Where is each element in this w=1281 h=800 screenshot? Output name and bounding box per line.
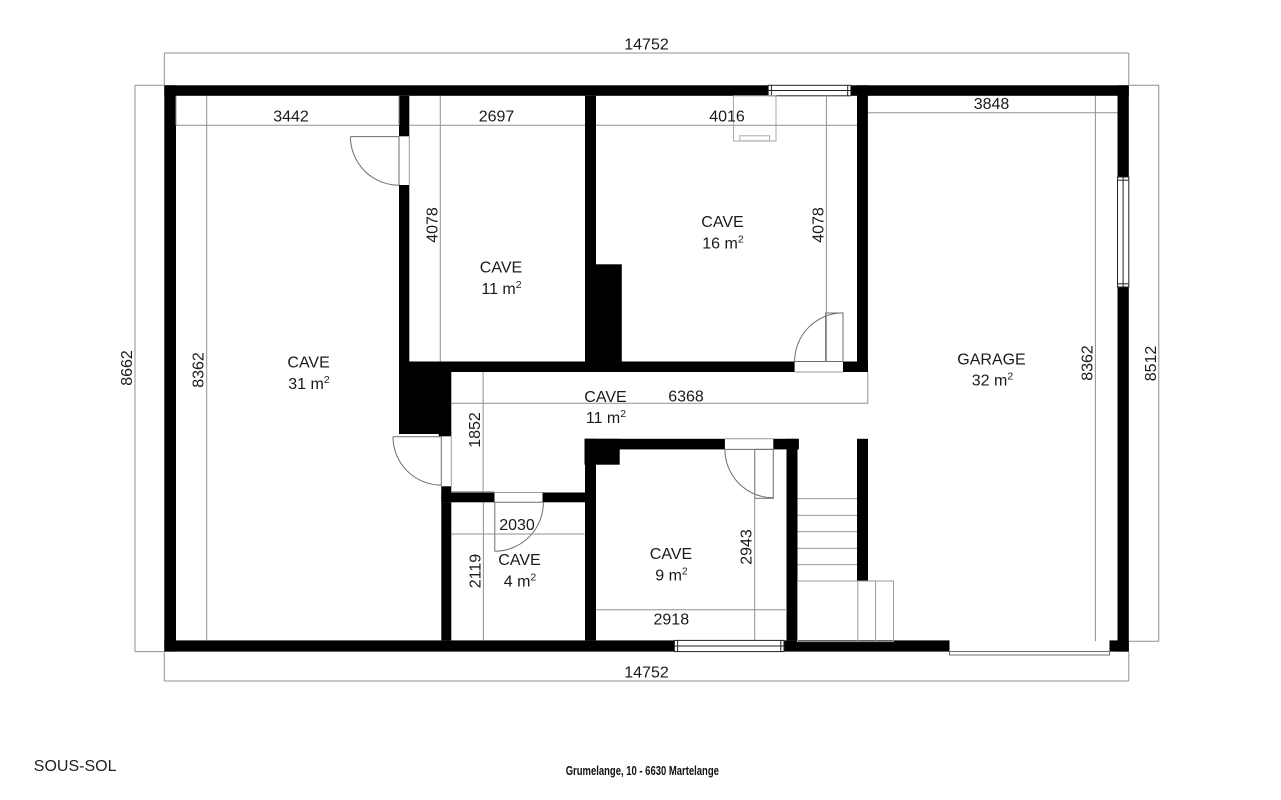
svg-text:CAVE: CAVE [498, 552, 540, 569]
svg-text:32 m2: 32 m2 [972, 371, 1014, 390]
svg-text:CAVE: CAVE [650, 546, 692, 563]
svg-text:4 m2: 4 m2 [504, 572, 537, 591]
svg-text:Grumelange, 10 - 6630 Martelan: Grumelange, 10 - 6630 Martelange [566, 764, 719, 778]
svg-text:11 m2: 11 m2 [586, 408, 626, 427]
svg-text:2918: 2918 [654, 612, 690, 629]
svg-text:2943: 2943 [739, 529, 756, 565]
svg-text:SOUS-SOL: SOUS-SOL [34, 758, 117, 775]
svg-text:14752: 14752 [624, 665, 669, 682]
svg-text:1852: 1852 [467, 412, 484, 448]
svg-text:11 m2: 11 m2 [481, 279, 521, 298]
svg-text:3848: 3848 [974, 96, 1010, 113]
svg-text:16 m2: 16 m2 [702, 234, 744, 253]
svg-text:4078: 4078 [424, 207, 441, 243]
svg-text:CAVE: CAVE [701, 214, 743, 231]
svg-text:6368: 6368 [668, 388, 704, 405]
svg-text:2697: 2697 [479, 108, 515, 125]
svg-text:CAVE: CAVE [480, 260, 522, 277]
svg-text:2119: 2119 [467, 554, 484, 589]
svg-text:CAVE: CAVE [287, 355, 329, 372]
svg-text:4016: 4016 [709, 108, 745, 125]
svg-text:31 m2: 31 m2 [288, 374, 330, 393]
svg-text:8512: 8512 [1143, 346, 1160, 382]
svg-text:9 m2: 9 m2 [655, 566, 688, 585]
svg-text:4078: 4078 [810, 207, 827, 243]
svg-text:8662: 8662 [119, 350, 136, 386]
svg-text:3442: 3442 [273, 108, 309, 125]
svg-text:2030: 2030 [499, 517, 535, 534]
svg-text:CAVE: CAVE [584, 389, 626, 406]
svg-text:8362: 8362 [1079, 345, 1096, 381]
svg-text:GARAGE: GARAGE [957, 352, 1025, 369]
svg-text:8362: 8362 [191, 352, 208, 388]
svg-text:14752: 14752 [624, 37, 669, 54]
